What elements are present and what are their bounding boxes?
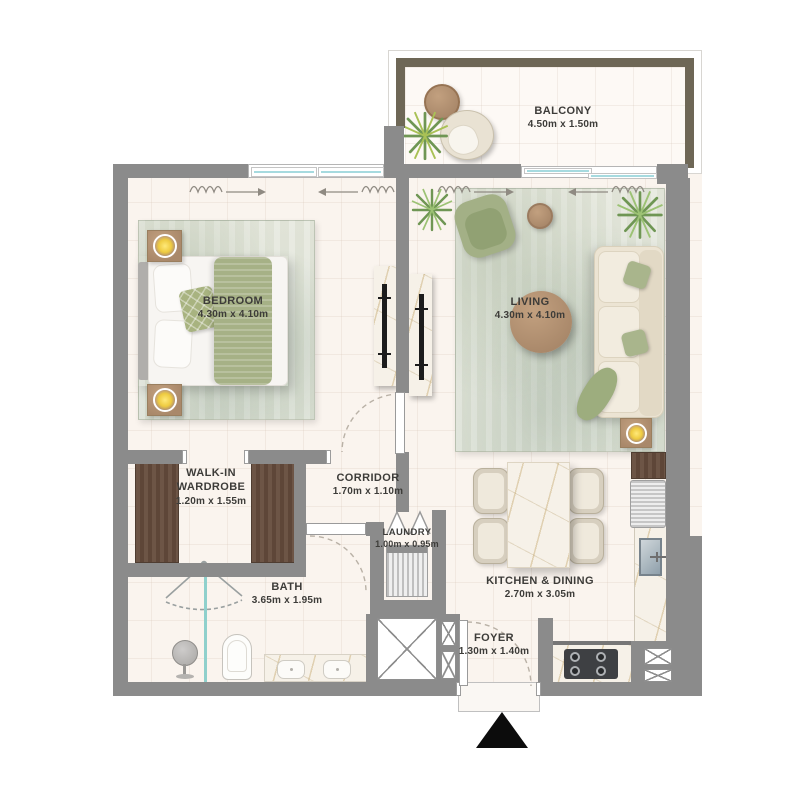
toilet [222, 634, 252, 680]
bath-stand [172, 640, 198, 666]
room-dims: 4.30m x 4.10m [450, 309, 610, 322]
burner-icon [570, 652, 580, 662]
room-label-corridor: CORRIDOR 1.70m x 1.10m [298, 471, 438, 498]
wall [113, 563, 306, 577]
floor-plan: BALCONY 4.50m x 1.50m BEDROOM 4.30m x 4.… [0, 0, 800, 800]
wall [432, 510, 446, 614]
room-name: LAUNDRY [362, 527, 452, 539]
room-dims: 1.20m x 1.55m [141, 495, 281, 508]
bath-vanity [264, 654, 376, 682]
dining-chair [568, 468, 604, 514]
wall [370, 600, 446, 614]
tv-icon [419, 294, 424, 380]
burner-icon [596, 652, 606, 662]
bath-door [306, 523, 366, 535]
shaft-duct [377, 618, 437, 680]
room-dims: 4.50m x 1.50m [468, 118, 658, 131]
counter-edge [553, 641, 631, 645]
room-name: FOYER [434, 631, 554, 645]
room-label-bedroom: BEDROOM 4.30m x 4.10m [153, 294, 313, 321]
room-name: BALCONY [468, 104, 658, 118]
door-jamb [244, 450, 249, 464]
curtain-icon [436, 182, 516, 198]
balcony-sliding-door [521, 166, 657, 178]
wall [113, 682, 458, 696]
room-label-balcony: BALCONY 4.50m x 1.50m [468, 104, 658, 131]
dining-chair [568, 518, 604, 564]
sofa [594, 246, 664, 418]
tv-panel [409, 274, 432, 396]
armchair-seat [462, 205, 510, 253]
room-label-laundry: LAUNDRY 1.00m x 0.95m [362, 527, 452, 551]
drain-icon [290, 668, 293, 671]
curtain-icon [188, 182, 268, 198]
door-jamb [182, 450, 187, 464]
plant-icon [400, 108, 450, 164]
room-name: KITCHEN & DINING [445, 574, 635, 588]
tv-panel [374, 266, 396, 386]
curtain-icon [566, 182, 646, 198]
bedroom-window [248, 164, 384, 178]
curtain-icon [316, 182, 396, 198]
wall [396, 58, 405, 128]
north-arrow-icon [476, 712, 528, 748]
wall [248, 450, 330, 464]
room-dims: 1.00m x 0.95m [362, 539, 452, 551]
wall [396, 178, 409, 393]
nightstand [147, 384, 182, 416]
drain-icon [336, 668, 339, 671]
lamp-table [620, 418, 652, 448]
room-label-foyer: FOYER 1.30m x 1.40m [434, 631, 554, 658]
dining-table [507, 462, 570, 568]
dining-chair [473, 518, 509, 564]
toilet-seat [227, 640, 247, 672]
room-name: WARDROBE [141, 480, 281, 494]
nightstand [147, 230, 182, 262]
room-name: BATH [217, 580, 357, 594]
room-name: CORRIDOR [298, 471, 438, 485]
room-name: WALK-IN [141, 466, 281, 480]
bedroom-door [395, 392, 405, 454]
room-label-bath: BATH 3.65m x 1.95m [217, 580, 357, 607]
shaft-duct [644, 648, 672, 665]
side-table [527, 203, 553, 229]
wall [113, 164, 248, 178]
fridge [630, 480, 666, 528]
room-dims: 3.65m x 1.95m [217, 594, 357, 607]
room-dims: 1.70m x 1.10m [298, 485, 438, 498]
lamp-glow-icon [626, 423, 647, 444]
stove [564, 649, 618, 679]
wall [685, 58, 694, 168]
room-label-living: LIVING 4.30m x 4.10m [450, 295, 610, 322]
wall [384, 126, 404, 178]
lamp-glow-icon [153, 234, 177, 258]
room-label-kitchen-dining: KITCHEN & DINING 2.70m x 3.05m [445, 574, 635, 601]
burner-icon [570, 666, 580, 676]
room-name: LIVING [450, 295, 610, 309]
faucet-icon [656, 552, 658, 562]
wall [666, 178, 690, 536]
room-dims: 1.30m x 1.40m [434, 645, 554, 658]
wall [113, 450, 184, 464]
wall [396, 58, 694, 67]
kitchen-sink [639, 538, 662, 576]
washing-machine [386, 545, 428, 597]
room-label-wardrobe: WALK-IN WARDROBE 1.20m x 1.55m [141, 466, 281, 508]
shaft-duct [644, 669, 672, 682]
faucet-icon [650, 556, 666, 558]
room-dims: 4.30m x 4.10m [153, 308, 313, 321]
burner-icon [596, 666, 606, 676]
wall [113, 164, 128, 696]
wall [404, 164, 521, 178]
room-name: BEDROOM [153, 294, 313, 308]
dining-chair [473, 468, 509, 514]
tv-icon [382, 284, 387, 368]
room-dims: 2.70m x 3.05m [445, 588, 635, 601]
kitchen-cabinet [631, 452, 666, 479]
bath-stand-base [176, 674, 194, 679]
lamp-glow-icon [153, 388, 177, 412]
